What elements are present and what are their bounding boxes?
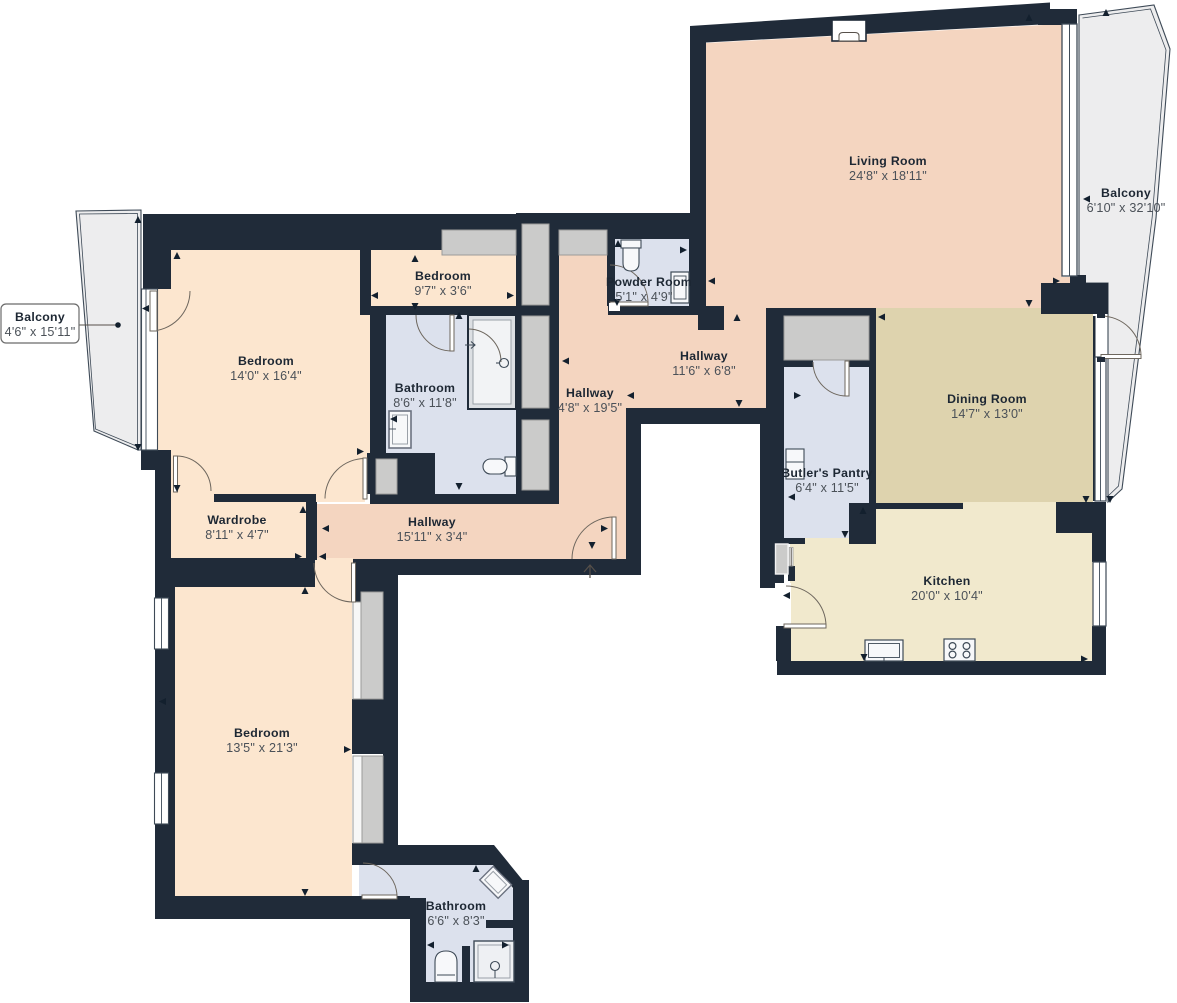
svg-text:5'1" x 4'9": 5'1" x 4'9": [615, 290, 672, 304]
svg-text:Wardrobe: Wardrobe: [207, 513, 266, 527]
svg-text:Bedroom: Bedroom: [415, 269, 471, 283]
svg-text:24'8" x 18'11": 24'8" x 18'11": [849, 169, 927, 183]
svg-text:Dining Room: Dining Room: [947, 392, 1027, 406]
svg-text:Butler's Pantry: Butler's Pantry: [781, 466, 872, 480]
svg-text:Balcony: Balcony: [1101, 186, 1151, 200]
svg-text:Powder Room: Powder Room: [606, 275, 692, 289]
svg-text:6'10" x 32'10": 6'10" x 32'10": [1087, 201, 1166, 215]
svg-text:Bathroom: Bathroom: [426, 899, 486, 913]
svg-text:Balcony: Balcony: [15, 310, 65, 324]
svg-text:Hallway: Hallway: [680, 349, 728, 363]
svg-text:Bedroom: Bedroom: [238, 354, 294, 368]
svg-text:Bedroom: Bedroom: [234, 726, 290, 740]
svg-text:Hallway: Hallway: [408, 515, 456, 529]
svg-text:Kitchen: Kitchen: [923, 574, 970, 588]
svg-text:20'0" x 10'4": 20'0" x 10'4": [911, 589, 983, 603]
svg-text:Bathroom: Bathroom: [395, 381, 455, 395]
svg-text:Living Room: Living Room: [849, 154, 927, 168]
svg-text:6'6" x 8'3": 6'6" x 8'3": [427, 914, 484, 928]
svg-text:4'8" x 19'5": 4'8" x 19'5": [558, 401, 622, 415]
svg-text:13'5" x 21'3": 13'5" x 21'3": [226, 741, 298, 755]
svg-text:Hallway: Hallway: [566, 386, 614, 400]
svg-text:14'0" x 16'4": 14'0" x 16'4": [230, 369, 302, 383]
svg-text:4'6" x 15'11": 4'6" x 15'11": [5, 325, 76, 339]
svg-text:8'11" x 4'7": 8'11" x 4'7": [205, 528, 269, 542]
svg-text:14'7" x 13'0": 14'7" x 13'0": [951, 407, 1023, 421]
svg-text:8'6" x 11'8": 8'6" x 11'8": [393, 396, 457, 410]
svg-text:6'4" x 11'5": 6'4" x 11'5": [795, 481, 859, 495]
svg-text:15'11" x 3'4": 15'11" x 3'4": [397, 530, 468, 544]
svg-text:11'6" x 6'8": 11'6" x 6'8": [672, 364, 736, 378]
svg-text:9'7" x 3'6": 9'7" x 3'6": [414, 284, 471, 298]
